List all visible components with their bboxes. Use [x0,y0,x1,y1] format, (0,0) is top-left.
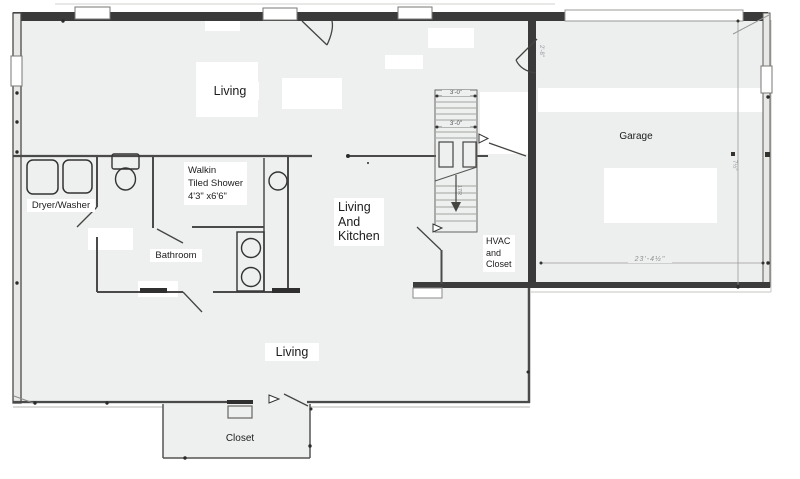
room-label-living-kitchen: Living And Kitchen [334,198,384,246]
room-label-garage: Garage [611,130,661,143]
plan-drawing [0,0,800,479]
living-kitchen-line3: Kitchen [338,229,380,244]
room-label-closet: Closet [217,432,263,445]
hvac-label-line3: Closet [486,259,512,271]
room-label-living-top: Living [201,82,259,100]
room-label-dryer-washer: Dryer/Washer [27,199,95,212]
room-label-hvac: HVAC and Closet [483,235,515,272]
stairs-run-note: 17R [456,185,462,195]
shower-label-line1: Walkin [188,164,243,177]
stairs-width-dim-top: 3'-0" [442,90,470,96]
stairs-width-dim-mid: 3'-0" [442,121,470,127]
room-label-shower: Walkin Tiled Shower 4'3" x6'6" [184,162,247,205]
room-label-living-bottom: Living [265,343,319,361]
shower-label-line2: Tiled Shower [188,177,243,190]
shower-label-line3: 4'3" x6'6" [188,190,243,203]
garage-door-symbol [565,10,743,21]
room-label-bathroom: Bathroom [150,249,202,262]
garage-door-dim-note: 2'-8" [538,45,544,57]
hvac-label-line1: HVAC [486,236,512,248]
garage-width-dim: 23'-4½" [628,256,672,263]
floor-plan-page: Living Dryer/Washer Walkin Tiled Shower … [0,0,800,479]
hvac-label-line2: and [486,248,512,260]
living-kitchen-line1: Living [338,200,380,215]
garage-side-dim-note: 7½" [731,160,737,170]
living-kitchen-line2: And [338,215,380,230]
